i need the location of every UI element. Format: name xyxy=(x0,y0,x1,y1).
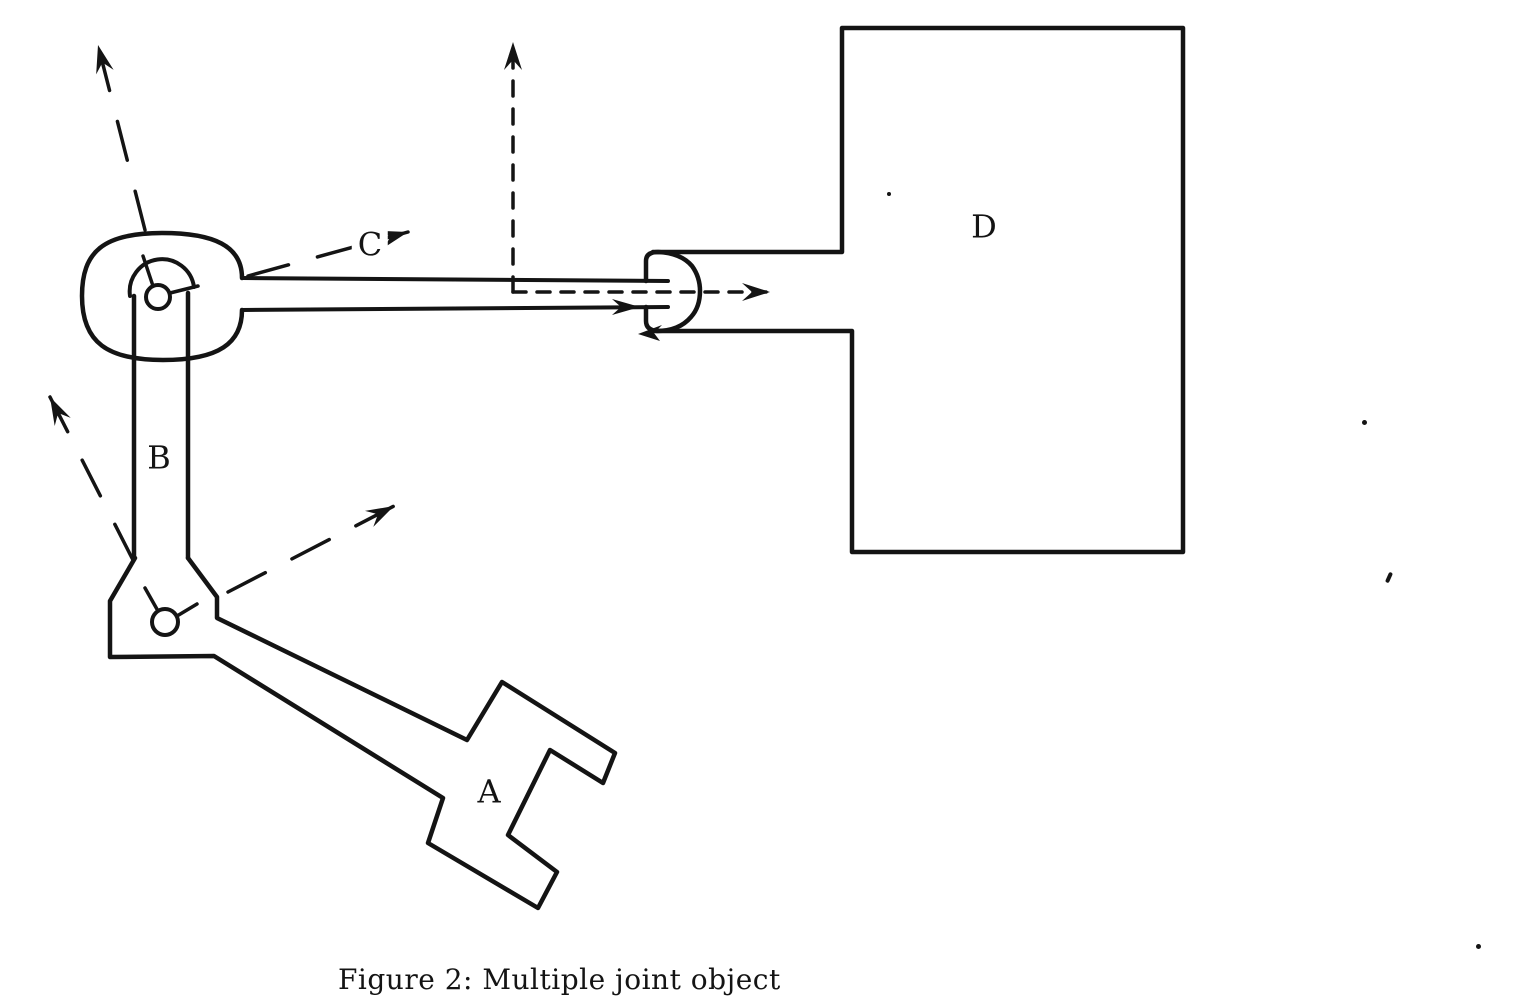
joint-upper-pin xyxy=(146,285,170,309)
scan-speck xyxy=(1362,420,1367,425)
joint-upper-hand-right xyxy=(170,286,198,293)
diagram-canvas xyxy=(0,0,1532,984)
joint-upper-housing-outline xyxy=(82,233,242,360)
scan-speck xyxy=(1476,944,1481,949)
joint-lower-pin xyxy=(152,609,178,635)
rod-c-bottom-edge xyxy=(242,307,668,310)
part-d-outline xyxy=(653,28,1183,552)
part-label-d: D xyxy=(971,207,997,245)
scan-speck xyxy=(887,192,891,196)
part-label-c: C xyxy=(352,225,388,263)
upper-left-rotation-arrow xyxy=(98,45,145,230)
figure-caption: Figure 2: Multiple joint object xyxy=(338,963,781,996)
rod-c-top-edge xyxy=(242,278,668,281)
joint-lower-hand-right xyxy=(177,604,197,616)
joint-lower-hand-left xyxy=(145,588,158,611)
figure-2-diagram: A B C D Figure 2: Multiple joint object xyxy=(0,0,1532,984)
part-label-a: A xyxy=(477,772,500,810)
part-label-b: B xyxy=(147,438,171,476)
lower-left-rotation-arrow xyxy=(50,397,133,560)
lower-right-rotation-arrow xyxy=(228,506,394,592)
